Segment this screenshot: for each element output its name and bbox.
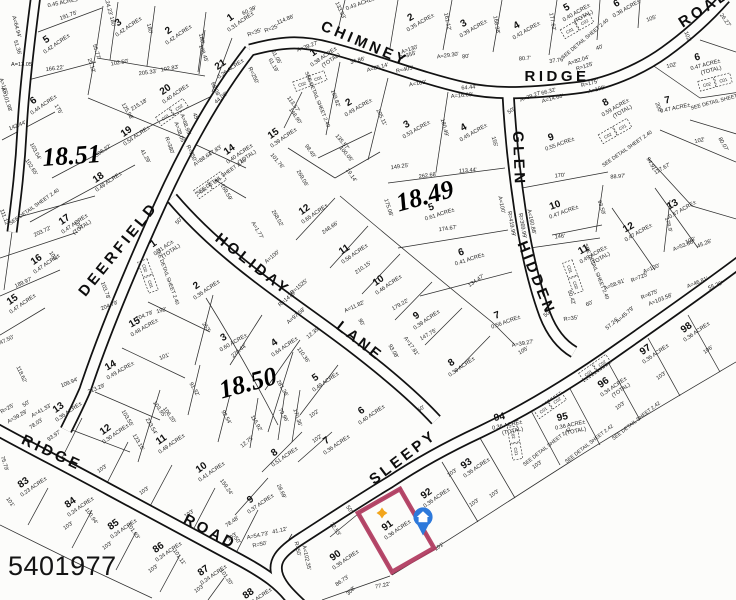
dimension-label: 80.07' <box>716 136 729 152</box>
lot-label: 70.47 ACRE± <box>657 91 691 115</box>
lot-label: 130.47 ACRE± <box>662 189 698 220</box>
lot-label: 20.35 ACRE± <box>400 2 436 33</box>
dimension-label: 108.45' <box>197 44 209 63</box>
dimension-label: 155' <box>490 136 498 148</box>
dimension-label: R=35' <box>563 315 578 323</box>
dimension-label: 110.36' <box>295 346 310 364</box>
lot-number: 7 <box>664 95 672 107</box>
dimension-label: 149.25' <box>390 163 409 171</box>
dimension-label: 159.24' <box>218 478 233 496</box>
dimension-label: 103' <box>655 371 667 382</box>
dimension-label: A=1.77' <box>250 221 265 240</box>
lot-label: 870.24 ACRE± <box>193 554 229 586</box>
dimension-label: 80' <box>462 54 470 61</box>
dimension-label: 19.14' <box>344 168 358 184</box>
dimension-label: A=64.94' <box>10 15 22 38</box>
lot-label: 110.49 ACRE±(TOTAL) <box>573 234 612 271</box>
dimension-label: 103' <box>147 564 159 575</box>
dimension-label: 0.43 ACRE± <box>345 0 376 12</box>
lot-label: 100.47 ACRE± <box>544 193 579 220</box>
dimension-label: 102' <box>694 137 705 145</box>
dimension-label: 113.44' <box>459 167 477 175</box>
lot-number: 9 <box>547 131 556 143</box>
dimension-label: 102' <box>308 409 320 420</box>
dimension-label: 102.83' <box>160 64 179 73</box>
dimension-label: 109.94' <box>60 377 79 389</box>
dimension-label: A=102.35' <box>300 545 311 571</box>
dimension-label: 12.35' <box>306 326 321 340</box>
svg-text:C01: C01 <box>566 265 574 275</box>
lot-number: 6 <box>457 246 466 258</box>
lot-label: 980.36 ACRE± <box>676 311 712 343</box>
dimension-label: 92.54' <box>219 409 232 425</box>
dimension-label: 41.29' <box>138 148 151 164</box>
roads <box>0 0 736 600</box>
dimension-label: 102' <box>666 62 677 70</box>
svg-text:C02: C02 <box>702 81 712 88</box>
dimension-label: 133.93' <box>333 1 346 20</box>
dimension-label: 51.36' <box>12 40 22 56</box>
dimension-label: 45.26' <box>697 238 713 249</box>
dimension-label: A=100' <box>264 249 281 265</box>
dimension-label: 192' <box>156 307 168 315</box>
dimension-label: 175' <box>53 103 63 115</box>
dimension-label: 215.18' <box>130 98 149 113</box>
dimension-label: A=17.81' <box>402 336 420 358</box>
dimension-label: 102.65' <box>23 158 38 177</box>
dimension-label: 203.72' <box>33 226 52 239</box>
dimension-label: 41.12' <box>272 527 288 536</box>
road-name-label: HOLIDAY <box>212 230 294 299</box>
lot-label: 150.48 ACRE± <box>124 307 160 338</box>
dimension-label: 124.23' <box>103 0 114 16</box>
dimension-label: A=29.30' <box>437 52 460 61</box>
lot-acreage: 0.47 ACRE± <box>660 102 691 114</box>
lot-label: 900.35 ACRE± <box>325 539 361 571</box>
lot-label: 190.54 ACRE± <box>116 115 152 147</box>
lot-label: 950.36 ACRE±(TOTAL) <box>552 408 587 439</box>
lot-label: 80.59 ACRE±(TOTAL) <box>595 87 634 124</box>
dimension-label: 79.96' <box>276 407 289 423</box>
dimension-label: 180.49' <box>439 118 450 137</box>
lot-label: 60.38 ACRE± <box>606 0 642 19</box>
lot-label: 60.40 ACRE± <box>351 394 387 426</box>
lot-label: 80.39 ACRE± <box>441 346 477 378</box>
sparkle-icon <box>377 508 388 519</box>
lot-label: 10.31 ACRE± <box>220 1 256 33</box>
dimension-label: 174.67' <box>438 225 457 233</box>
svg-text:C01: C01 <box>314 75 324 83</box>
dimension-label: 78.48' <box>225 515 241 529</box>
dimension-label: 269.06' <box>295 169 309 188</box>
parcel-lines <box>0 0 736 600</box>
svg-text:C02: C02 <box>298 80 308 88</box>
dimension-label: A=100' <box>496 196 505 214</box>
dimension-label: 147.50' <box>0 335 15 348</box>
dimension-label: R=25' <box>0 403 15 416</box>
svg-text:C02: C02 <box>572 281 580 291</box>
dimension-label: 180' <box>197 33 205 44</box>
dimension-label: R=50' <box>252 541 268 550</box>
svg-text:C02: C02 <box>510 430 516 439</box>
dimension-label: 169.59' <box>219 183 233 202</box>
dimension-label: 223.54' <box>144 417 158 436</box>
lot-label: 120.65 ACRE± <box>294 193 330 225</box>
dimension-label: A=41.33' <box>30 403 52 419</box>
dimension-label: 98.49' <box>303 144 317 160</box>
dimension-label: 114.86' <box>276 14 295 26</box>
lot-label: 30.53 ACRE± <box>396 109 432 140</box>
dimension-label: 105' <box>646 14 658 23</box>
dimension-label: 170.36' <box>291 408 302 427</box>
lot-label: 140.49 ACRE± <box>100 350 136 381</box>
lot-label: 30.39 ACRE± <box>453 8 489 39</box>
lot-label: 40.45 ACRE± <box>453 112 489 143</box>
dimension-label: 134.47' <box>467 274 485 289</box>
dimension-label: 268.02' <box>270 209 284 228</box>
dimension-label: 28.69' <box>275 483 287 499</box>
map-id: 5401977 <box>8 551 117 582</box>
lot-label: 150.39 ACRE± <box>263 117 299 149</box>
lot-number: 95 <box>556 411 570 424</box>
dimension-label: 166.22' <box>45 65 64 73</box>
svg-text:C01: C01 <box>161 113 171 122</box>
dimension-label: 47.83' <box>208 144 224 158</box>
lot-label: 70.56 ACRE± <box>486 303 521 330</box>
dimension-label: 101' <box>4 496 15 508</box>
dimension-label: 180' <box>145 23 153 34</box>
dimension-label: A=45.79' <box>615 306 635 325</box>
dimension-label: 101' <box>159 352 171 361</box>
dimension-label: 205.33' <box>138 69 157 77</box>
dimension-label: A=39.29' <box>6 409 28 425</box>
dimension-label: 91.32' <box>187 381 200 397</box>
detail-ref-box: C01C02 <box>563 260 584 294</box>
dimension-label: 103' <box>446 468 458 479</box>
lot-label: 160.47 ACRE± <box>26 243 62 275</box>
dimension-label: 93.97' <box>47 429 63 443</box>
dimension-label: 103' <box>614 401 626 412</box>
dimension-label: 169.82' <box>329 89 341 108</box>
dimension-label: R=380' <box>163 136 175 155</box>
dimension-label: 103' <box>468 498 480 509</box>
dimension-label: 88.97' <box>610 173 626 180</box>
dimension-label: A=100' <box>409 80 427 89</box>
dimension-label: 123.15' <box>131 433 145 452</box>
lot-label: 110.56 ACRE± <box>334 233 370 265</box>
lot-label: 40.42 ACRE± <box>506 10 542 41</box>
dimension-label: A=13.05' <box>11 62 33 68</box>
dimension-label: 86.73' <box>335 574 351 588</box>
dimension-label: 248.66' <box>321 221 339 236</box>
dimension-label: 78.03' <box>29 417 45 431</box>
block-number-label: 18.50 <box>216 361 280 404</box>
dimension-label: 50' <box>22 400 31 409</box>
dimension-label: 93.59' <box>596 200 606 216</box>
dimension-label: 102.50' <box>110 58 129 67</box>
lot-label: 120.47 ACRE± <box>618 212 654 243</box>
lot-label: 920.35 ACRE± <box>416 477 452 509</box>
dimension-label: 118.62' <box>14 365 27 384</box>
dimension-label: 12.75' <box>240 435 255 449</box>
svg-text:C01: C01 <box>719 77 729 84</box>
lot-label: 60.41 ACRE± <box>451 241 486 268</box>
lot-label: 50.49 ACRE± <box>305 361 341 393</box>
dimension-label: A=11.82' <box>343 300 365 315</box>
dimension-label: 80.7' <box>519 55 531 62</box>
detail-ref-box: C02C01 <box>598 118 632 143</box>
home-pin-icon[interactable] <box>413 507 432 535</box>
dimension-label: 103' <box>488 489 500 500</box>
block-number-label: 18.51 <box>41 139 101 172</box>
dimension-label: A=16.60' <box>451 92 474 100</box>
dimension-label: A=101.98' <box>0 87 13 113</box>
dimension-label: 26.27' <box>718 13 732 29</box>
road-name-label: RIDGE <box>524 68 589 85</box>
dimension-label: 115.92' <box>249 414 263 432</box>
dimension-label: 40' <box>595 44 604 52</box>
dimension-label: 0.45 ACRE± <box>47 0 78 9</box>
dimension-label: 189.97' <box>14 277 33 290</box>
dimension-label: 90' <box>356 318 365 327</box>
svg-text:C02: C02 <box>141 264 149 274</box>
lot-label: 170.47 ACRE±(TOTAL) <box>54 203 94 241</box>
lot-label: 40.64 ACRE± <box>264 326 300 358</box>
dimension-label: R=35' <box>247 28 263 39</box>
lot-label: 20.42 ACRE± <box>158 14 194 46</box>
dimension-label: 93.08' <box>386 343 399 359</box>
dimension-label: 308' <box>345 585 357 597</box>
dimension-label: 50.42' <box>566 290 576 306</box>
svg-text:C01: C01 <box>147 280 155 290</box>
lot-label: 830.23 ACRE± <box>13 466 49 498</box>
dimension-label: 210.15' <box>354 261 372 276</box>
dimension-label: A=100' <box>642 263 660 275</box>
dimension-label: 175.08' <box>382 198 393 217</box>
dimension-label: 72.53' <box>328 522 342 538</box>
tax-map-viewport[interactable]: A=64.94'51.36'A=13.05'166.22'191.75'124.… <box>0 0 736 600</box>
dimension-label: R=250' <box>246 66 259 85</box>
dimension-label: 75.79' <box>0 456 9 472</box>
dimension-label: 60' <box>585 300 594 309</box>
lot-label: 60.47 ACRE±(TOTAL) <box>687 47 723 79</box>
dimension-label: 77.22' <box>375 582 391 591</box>
dimension-label: 146' <box>554 234 565 241</box>
dimension-label: 103' <box>96 464 108 475</box>
dimension-label: 101.76' <box>269 152 285 170</box>
dimension-label: 179.22' <box>391 298 410 312</box>
road-name-label: GLEN <box>509 131 528 187</box>
lot-number: 7 <box>493 309 502 321</box>
lot-label: 50.42 ACRE± <box>36 23 72 55</box>
lot-label: 70.35 ACRE± <box>316 424 352 456</box>
dimension-label: 161.12' <box>442 12 452 31</box>
lot-label: 930.35 ACRE± <box>456 447 492 479</box>
svg-text:C02: C02 <box>175 103 185 112</box>
lot-label: 20.35 ACRE± <box>186 269 222 301</box>
svg-text:C01: C01 <box>513 447 519 456</box>
lot-label: 200.40 ACRE± <box>155 73 191 105</box>
dimension-label: 103' <box>138 486 150 497</box>
dimension-label: 103.04' <box>28 142 42 161</box>
dimension-label: 103' <box>62 521 74 532</box>
lot-label: 20.49 ACRE± <box>338 87 374 118</box>
lot-number: 6 <box>693 51 702 63</box>
dimension-label: 106' <box>702 345 714 356</box>
dimension-label: 170' <box>554 173 565 180</box>
dimension-label: 103' <box>101 541 113 552</box>
lot-label: 90.55 ACRE± <box>540 125 575 152</box>
